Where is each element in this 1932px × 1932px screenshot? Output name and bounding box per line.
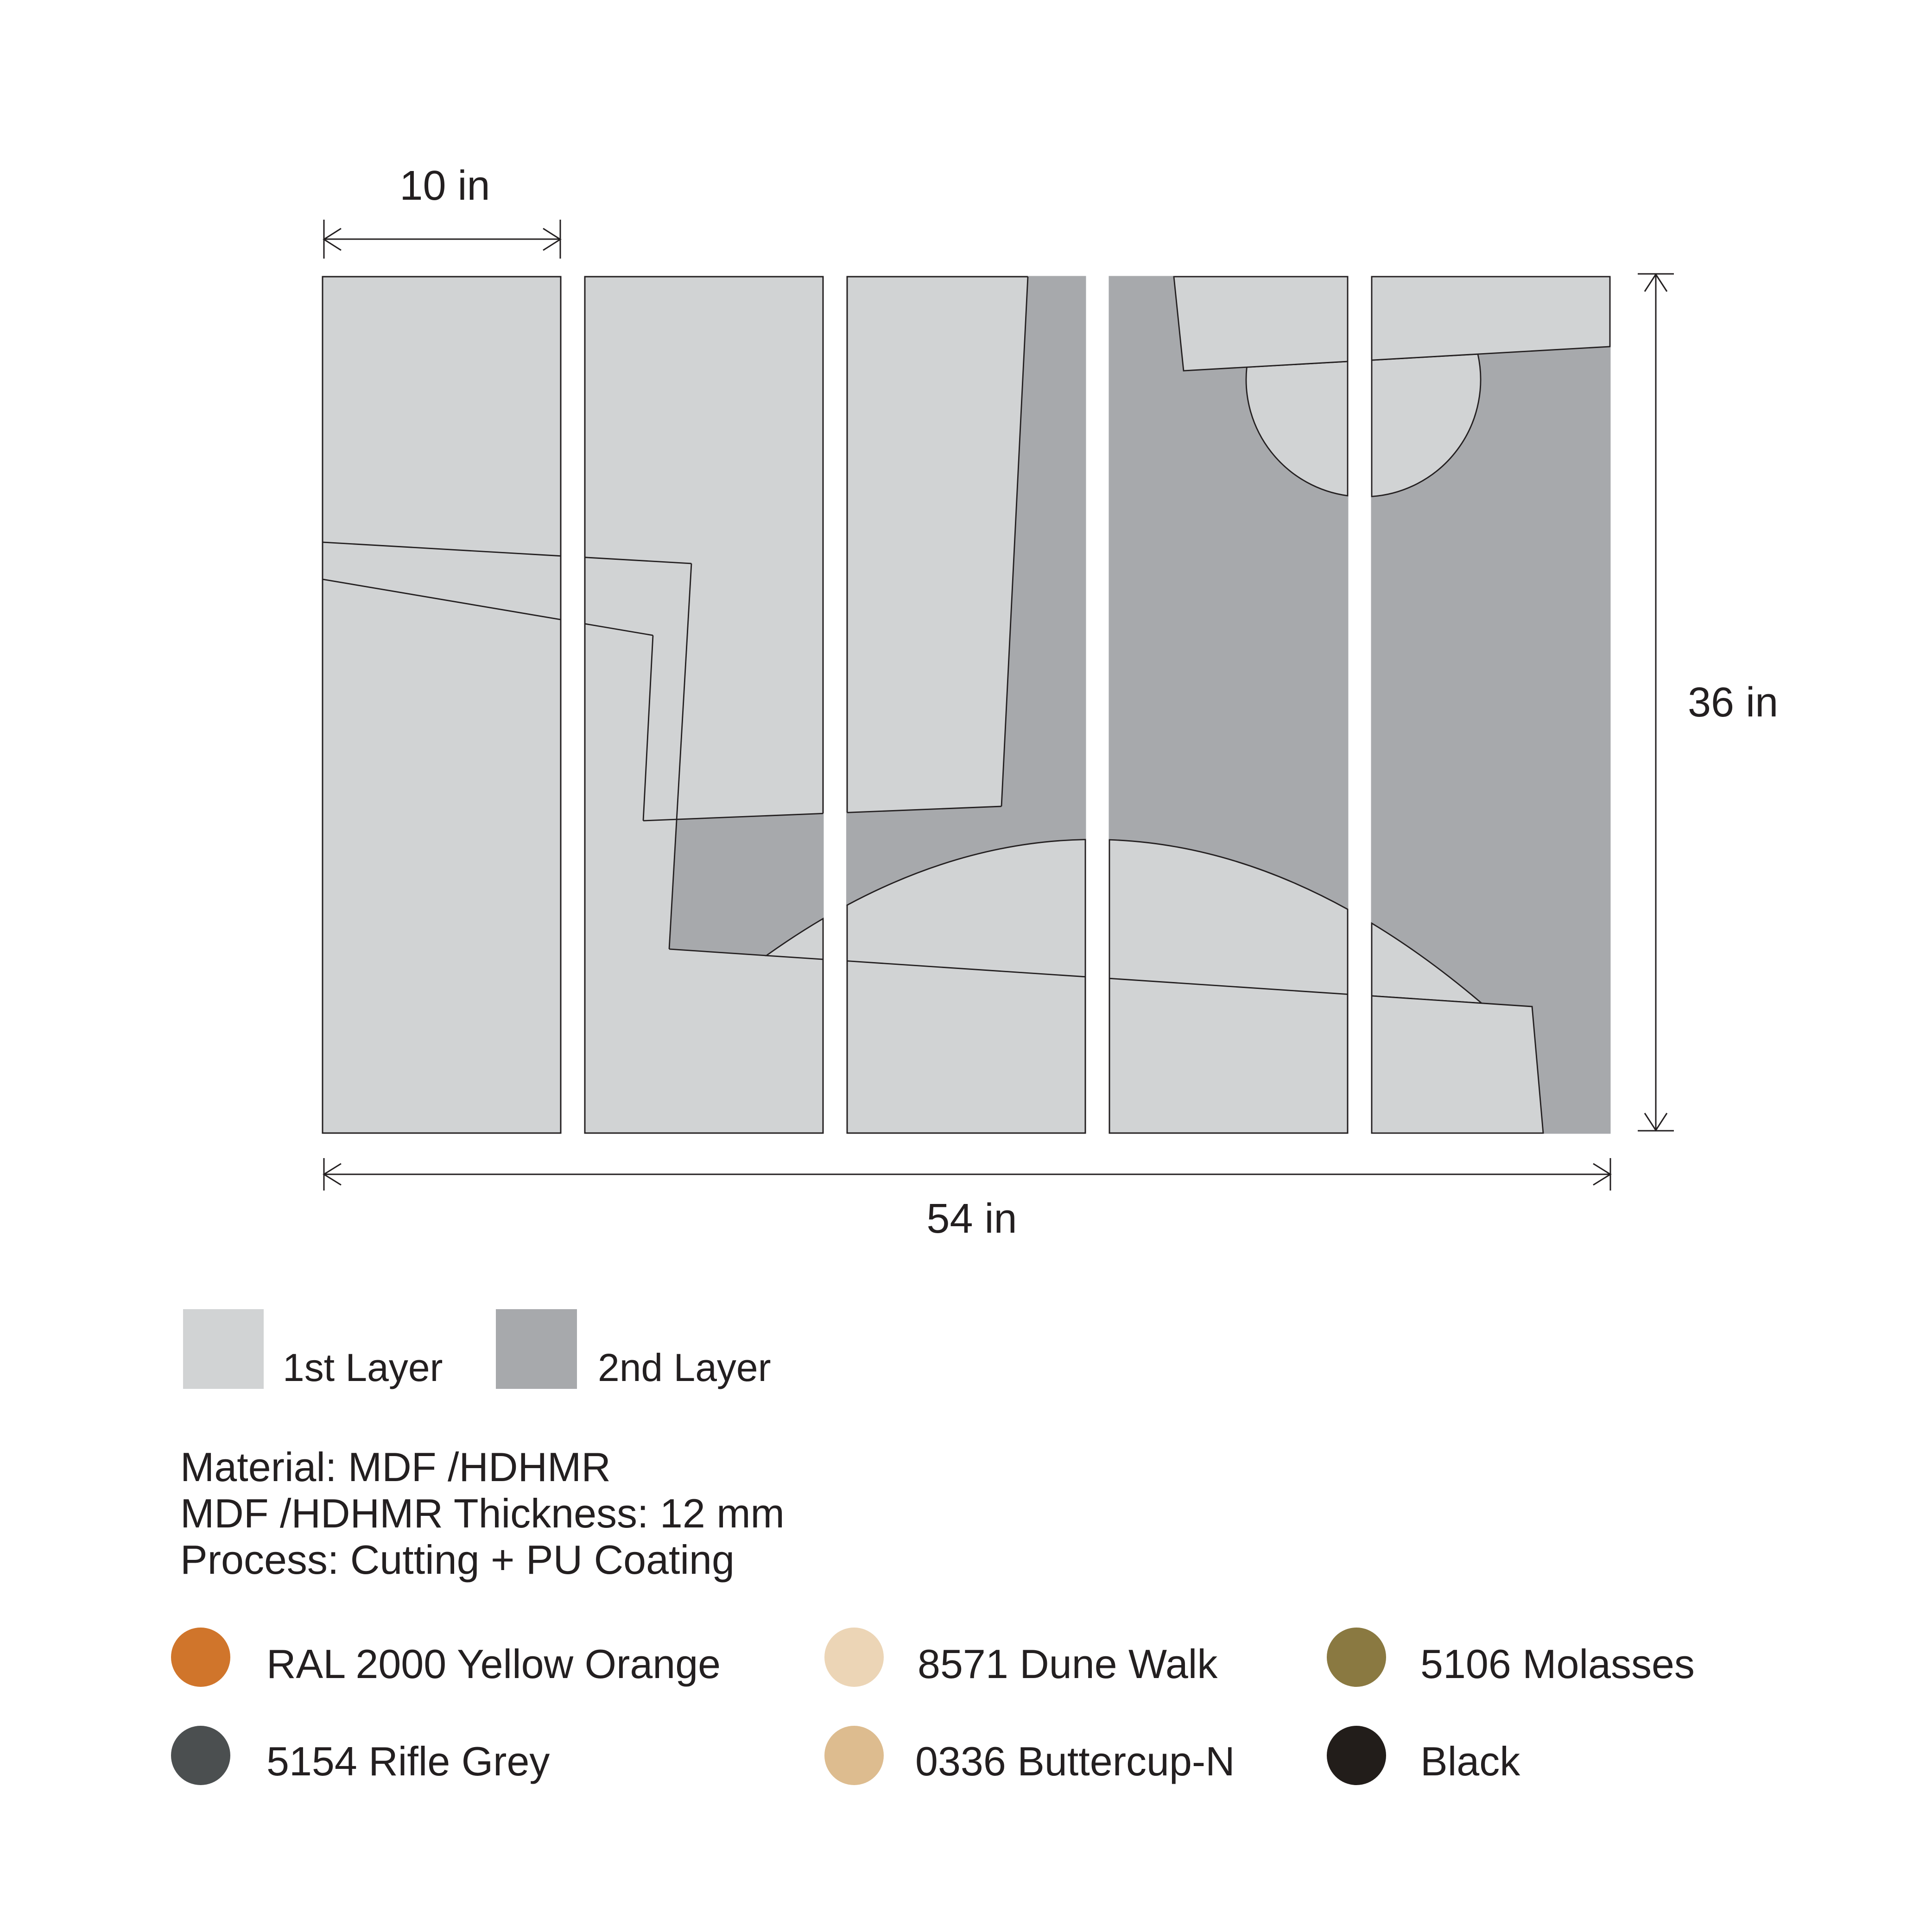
svg-text:2nd Layer: 2nd Layer	[598, 1346, 771, 1389]
svg-text:10 in: 10 in	[399, 163, 490, 209]
svg-text:5106 Molasses: 5106 Molasses	[1420, 1641, 1695, 1687]
svg-text:RAL 2000 Yellow Orange: RAL 2000 Yellow Orange	[266, 1641, 721, 1687]
svg-text:Process: Cutting + PU Coating: Process: Cutting + PU Coating	[180, 1537, 735, 1583]
svg-text:36 in: 36 in	[1688, 679, 1778, 726]
svg-text:54 in: 54 in	[926, 1196, 1017, 1242]
svg-text:8571 Dune Walk: 8571 Dune Walk	[918, 1641, 1218, 1687]
svg-text:1st Layer: 1st Layer	[283, 1346, 443, 1389]
svg-text:0336 Buttercup-N: 0336 Buttercup-N	[915, 1738, 1235, 1784]
svg-text:MDF /HDHMR Thickness: 12 mm: MDF /HDHMR Thickness: 12 mm	[180, 1490, 785, 1536]
svg-text:Material: MDF /HDHMR: Material: MDF /HDHMR	[180, 1444, 611, 1490]
svg-text:Black: Black	[1420, 1738, 1520, 1784]
svg-text:5154 Rifle Grey: 5154 Rifle Grey	[266, 1738, 550, 1784]
